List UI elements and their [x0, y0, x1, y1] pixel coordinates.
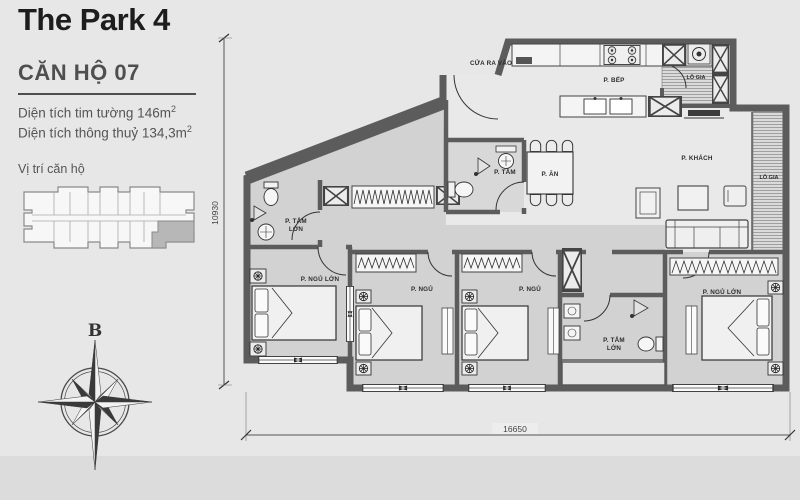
- dim-width: 16650: [503, 424, 527, 434]
- shaft-box-ladder-bottom: [713, 75, 729, 103]
- tv-cabinet: [636, 188, 660, 218]
- kitchen-island-sink: [560, 96, 646, 117]
- label-bath-master-1-line1: P. TẮM: [285, 216, 307, 225]
- compass-rose: [38, 340, 152, 470]
- label-entrance: CỬA RA VÀO: [470, 58, 512, 67]
- label-bedroom-master-2: P. NGỦ LỚN: [703, 287, 742, 296]
- label-bath-master-1-line2: LỚN: [289, 224, 304, 233]
- label-dining: P. ĂN: [542, 169, 559, 178]
- shaft-box-kitchen: [663, 45, 685, 65]
- label-bath: P. TẮM: [494, 167, 516, 176]
- label-bedroom-2: P. NGỦ: [411, 284, 433, 293]
- keyplan-unit-highlight: [152, 221, 194, 248]
- building-keyplan: [18, 182, 200, 254]
- floorplan-drawing: CỬA RA VÀO P. BẾP LÔ GIA LÔ GIA P. KHÁCH…: [210, 25, 800, 445]
- label-loggia-living: LÔ GIA: [760, 173, 779, 181]
- label-bath-master-2-line2: LỚN: [607, 343, 622, 352]
- label-bath-master-2-line1: P. TẮM: [603, 335, 625, 344]
- area-net: Diện tích thông thuỷ 134,3m2: [18, 123, 228, 143]
- compass: B: [36, 320, 154, 472]
- label-bedroom-3: P. NGỦ: [519, 284, 541, 293]
- shaft-box-island: [649, 97, 680, 116]
- area-gross: Diện tích tim tường 146m2: [18, 103, 228, 123]
- sofa: [666, 220, 748, 248]
- floorplan-page: The Park 4 CĂN HỘ 07 Diện tích tim tường…: [0, 0, 800, 500]
- coffee-table: [678, 186, 708, 210]
- label-living: P. KHÁCH: [681, 153, 712, 162]
- corridor-wardrobe: [352, 186, 434, 208]
- unit-info: CĂN HỘ 07 Diện tích tim tường 146m2 Diện…: [18, 60, 228, 176]
- page-title: The Park 4: [18, 2, 228, 38]
- dimension-vertical: 10930: [210, 34, 232, 389]
- shaft-box-bedrooms: [563, 250, 581, 290]
- dimension-horizontal: 16650: [241, 392, 795, 441]
- compass-north-label: B: [88, 321, 102, 341]
- shaft-box-corridor-left: [324, 187, 348, 205]
- unit-location-label: Vị trí căn hộ: [18, 162, 228, 176]
- label-loggia-kitchen: LÔ GIA: [687, 73, 706, 81]
- unit-number: CĂN HỘ 07: [18, 60, 196, 95]
- kitchen-appliance-round: [688, 44, 710, 64]
- shaft-box-ladder-top: [713, 45, 729, 73]
- kitchen-appliance-small: [516, 57, 532, 64]
- dim-height: 10930: [210, 201, 220, 225]
- armchair: [724, 186, 746, 206]
- stove: [604, 46, 640, 65]
- info-panel: The Park 4 CĂN HỘ 07 Diện tích tim tường…: [18, 2, 228, 259]
- label-bedroom-master-1: P. NGỦ LỚN: [301, 274, 340, 283]
- loggia-living: [753, 112, 785, 252]
